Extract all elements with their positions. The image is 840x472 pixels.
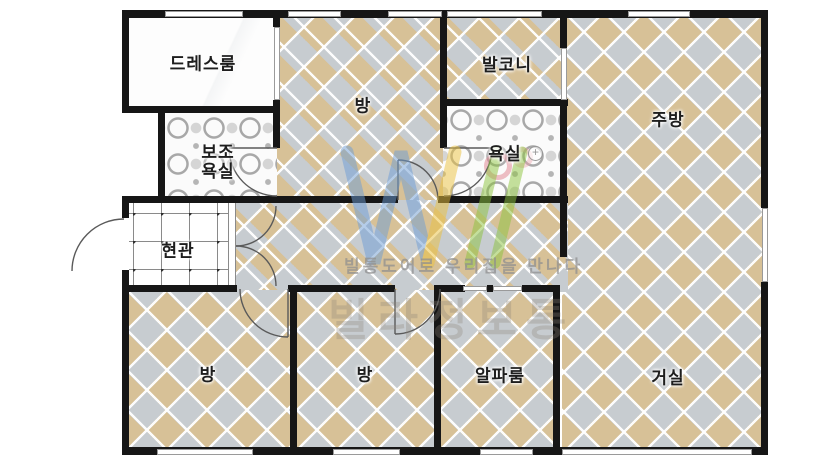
wall-segment — [122, 270, 129, 455]
room-label-balcony: 발코니 — [482, 51, 532, 76]
window — [562, 449, 752, 455]
window — [762, 208, 768, 282]
wall-segment — [761, 10, 768, 208]
room-label-entrance: 현관 — [161, 237, 194, 262]
wall-segment — [438, 196, 568, 203]
aux-bathroom-line2: 욕실 — [201, 162, 234, 181]
window — [480, 449, 533, 455]
wall-segment — [440, 99, 568, 106]
aux-bathroom-line1: 보조 — [201, 143, 234, 162]
room-label-aux-bathroom: 보조 욕실 — [201, 143, 234, 181]
window — [165, 11, 243, 17]
window — [274, 27, 280, 100]
sink-icon: + — [528, 146, 543, 161]
room-area-hallway — [228, 200, 568, 292]
wall-segment — [761, 282, 768, 455]
window — [288, 11, 341, 17]
wall-segment — [158, 106, 165, 203]
room-label-living-room: 거실 — [651, 364, 684, 389]
window — [561, 48, 567, 100]
watermark-tagline: 빌통도어로 우리집을 만나다 — [344, 252, 583, 277]
wall-segment — [122, 106, 280, 113]
wall-segment — [290, 292, 297, 455]
wall-segment — [560, 100, 567, 257]
wall-segment — [122, 10, 129, 110]
window — [157, 449, 253, 455]
floor-plan: + 빌통도어로 우리집을 만나다 빌라정보통 드레스룸 방 발코니 주방 보조 … — [0, 0, 840, 472]
room-label-alpha-room: 알파룸 — [475, 362, 525, 387]
window — [388, 11, 442, 17]
room-label-kitchen: 주방 — [651, 106, 684, 131]
room-label-room-bottom-left: 방 — [200, 361, 217, 386]
watermark-brand: 빌라정보통 — [328, 284, 575, 348]
wall-segment — [440, 10, 447, 148]
wall-segment — [273, 100, 280, 148]
entrance-door-opening — [122, 218, 129, 270]
entrance-door-frame — [228, 203, 236, 285]
room-label-bathroom: 욕실 — [488, 140, 521, 165]
window — [333, 449, 400, 455]
wall-segment — [560, 10, 567, 48]
window — [447, 11, 542, 17]
wall-segment — [122, 285, 237, 292]
room-label-room-bottom-mid: 방 — [357, 361, 374, 386]
room-label-dress-room: 드레스룸 — [170, 50, 237, 75]
room-label-room-top: 방 — [355, 92, 372, 117]
wall-segment — [273, 10, 280, 27]
window — [628, 11, 690, 17]
wall-segment — [122, 196, 129, 218]
